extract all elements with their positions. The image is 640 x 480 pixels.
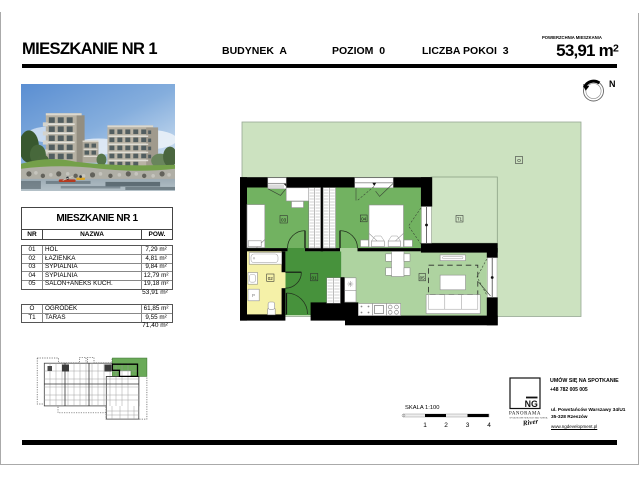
svg-text:3: 3 (466, 422, 470, 429)
svg-text:1: 1 (423, 422, 427, 429)
svg-text:03: 03 (281, 218, 287, 223)
svg-text:2: 2 (444, 422, 448, 429)
svg-text:O: O (517, 158, 521, 163)
svg-text:SKALA 1:100: SKALA 1:100 (405, 405, 440, 411)
svg-text:P: P (252, 293, 255, 298)
svg-text:05: 05 (420, 276, 426, 281)
svg-text:01: 01 (312, 276, 318, 281)
svg-text:04: 04 (361, 217, 367, 222)
svg-text:T1: T1 (457, 217, 463, 222)
svg-text:NG: NG (525, 399, 538, 409)
svg-text:02: 02 (268, 276, 274, 281)
svg-text:4: 4 (487, 422, 491, 429)
svg-text:River: River (521, 417, 539, 427)
svg-text:PANORAMA: PANORAMA (509, 412, 541, 417)
